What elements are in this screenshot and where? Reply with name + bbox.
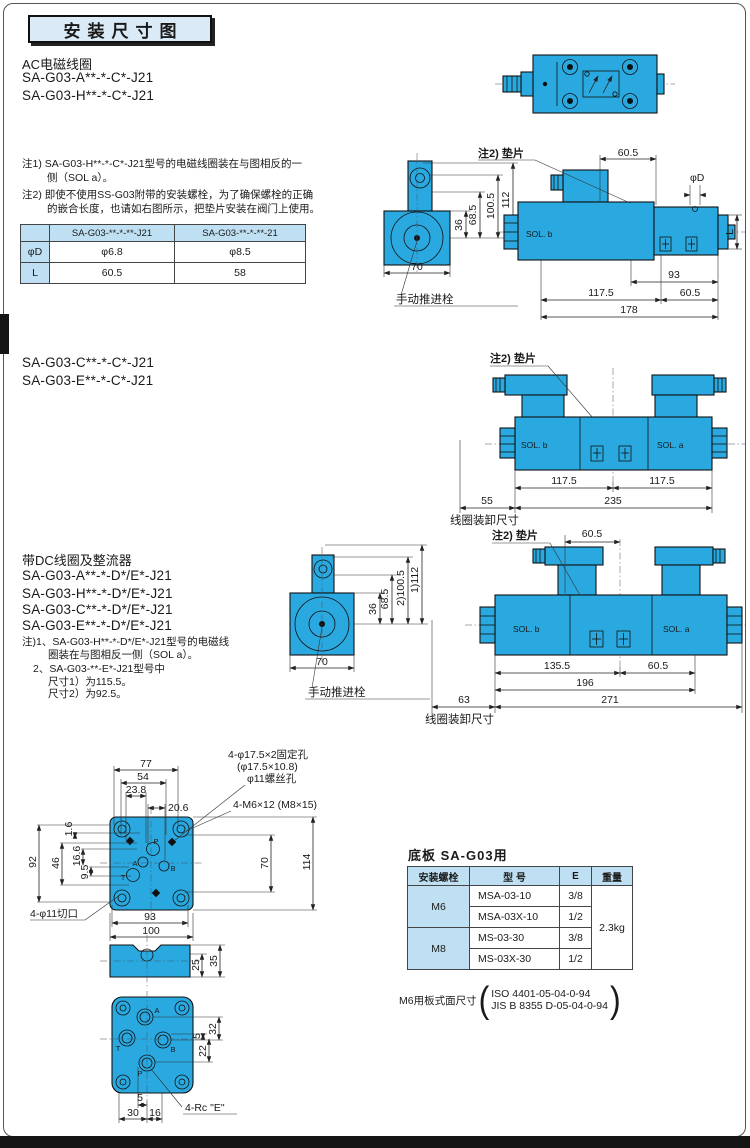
plate-model-msa0310: MSA-03-10 (470, 886, 560, 907)
manual-pin-label: 手动推进栓 (396, 292, 454, 306)
bolt-spec-table: SA-G03-**-*-**-J21 SA-G03-**-*-**-21 φD … (20, 224, 306, 284)
dim-93: 93 (668, 269, 680, 281)
page-edge-tab (0, 314, 9, 354)
dim-23-8-54: 54 (137, 771, 149, 783)
plate-header-model: 型 号 (470, 867, 560, 886)
dim-16: 16 (149, 1107, 161, 1119)
plate-weight-cell: 2.3kg (592, 886, 633, 970)
notch-label: 4-φ11切口 (30, 908, 78, 920)
dim-178: 178 (620, 304, 638, 316)
dim-1-6: 1.6 (63, 822, 75, 837)
ac-end-view-geometry (384, 153, 450, 273)
port-p-label: P (153, 837, 158, 846)
open-paren: ( (479, 984, 490, 1017)
plate-header-weight: 重量 (592, 867, 633, 886)
mounting-face-geometry: P A B T (100, 807, 203, 920)
port-b-label: B (170, 864, 175, 873)
plate-model-ms0330: MS-03-30 (470, 928, 560, 949)
spec-header-j21: SA-G03-**-*-**-J21 (50, 225, 175, 242)
sol-b-label: SOL. b (521, 440, 548, 450)
dim-63: 63 (458, 694, 470, 706)
dim-23-8: 23.8 (126, 784, 147, 796)
dim-117-5: 117.5 (588, 287, 614, 299)
dim-112: 112 (500, 191, 512, 208)
dc-model-2: SA-G03-H**-*-D*/E*-J21 (22, 586, 173, 601)
ac-note1-line2: 侧（SOL a）。 (47, 172, 113, 185)
bolt-spec-label: 4-M6×12 (M8×15) (233, 799, 317, 811)
plate-m6-cell: M6 (408, 886, 470, 928)
dim-196: 196 (576, 677, 594, 689)
coil-removal-label: 线圈装卸尺寸 (425, 712, 494, 726)
drawing-ac-double-solenoid: SOL. b SOL. a 注2) 垫片 117.5 117.5 55 235 … (300, 350, 750, 530)
page-bottom-bar (0, 1136, 750, 1148)
plate-header-e: E (560, 867, 592, 886)
spec-l-21: 58 (175, 263, 306, 284)
drawing-subplate-side: 25 35 (85, 925, 350, 1000)
spec-row-phid-label: φD (21, 242, 50, 263)
plate-header-bolt: 安装螺栓 (408, 867, 470, 886)
subplate-table: 安装螺栓 型 号 E 重量 M6 MSA-03-10 3/8 2.3kg MSA… (407, 866, 633, 970)
port-a-label: A (132, 859, 137, 868)
shim-note-label: 注2) 垫片 (478, 146, 524, 160)
spec-header-21: SA-G03-**-*-**-21 (175, 225, 306, 242)
dim-16-6: 16.6 (71, 846, 83, 867)
sol-b-label: SOL. b (513, 624, 540, 634)
dc-note2-line1: 2、SA-G03-**-E*-J21型号中 (33, 663, 165, 676)
plate-footnote: M6用板式面尺寸 ( ISO 4401-05-04-0-94 JIS B 835… (399, 986, 623, 1015)
port-t-label: T (116, 1044, 121, 1053)
dim-l: L (724, 229, 736, 235)
dim-5-bottom: 5 (137, 1092, 143, 1104)
ac-double-geometry: SOL. b SOL. a (485, 368, 745, 482)
plate-model-msa03x10: MSA-03X-10 (470, 907, 560, 928)
port-t-label: T (121, 873, 126, 882)
plate-e-msa03x10: 1/2 (560, 907, 592, 928)
dc-end-view-geometry (290, 547, 354, 663)
dim-93: 93 (144, 911, 156, 923)
fixing-hole-label-1: 4-φ17.5×2固定孔 (228, 748, 309, 761)
drawing-dc-double-solenoid: 36 68.5 2)100.5 1)112 70 手动推进栓 (270, 525, 750, 740)
dim-68-5: 68.5 (467, 205, 479, 226)
dim-100-5: 100.5 (485, 193, 497, 219)
screw-hole-label: φ11螺丝孔 (247, 772, 297, 785)
dim-271: 271 (601, 694, 619, 706)
spec-corner-cell (21, 225, 50, 242)
dim-114: 114 (301, 853, 313, 870)
dim-70: 70 (316, 656, 328, 668)
dim-phi-d: φD (690, 172, 705, 184)
port-b-label: B (170, 1045, 175, 1054)
drawing-ac-single-solenoid: 36 68.5 100.5 112 70 手动推进栓 SOL. b (368, 145, 750, 337)
ac-model-1: SA-G03-A**-*-C*-J21 (22, 70, 153, 85)
dim-36: 36 (453, 219, 465, 231)
spec-phid-j21: φ6.8 (50, 242, 175, 263)
shim-note-label: 注2) 垫片 (492, 528, 538, 542)
plate-e-ms03x30: 1/2 (560, 949, 592, 970)
dim-77: 77 (140, 758, 152, 770)
dim-70: 70 (411, 261, 423, 273)
dim-60-5: 60.5 (680, 287, 701, 299)
rc-thread-label: 4-Rc "E" (185, 1102, 225, 1114)
spec-row-l-label: L (21, 263, 50, 284)
dim-30: 30 (127, 1107, 139, 1119)
dc-model-4: SA-G03-E**-*-D*/E*-J21 (22, 618, 172, 633)
shim-note-label: 注2) 垫片 (490, 351, 536, 365)
dim-46: 46 (50, 857, 62, 869)
dc-note2-line3: 尺寸2）为92.5。 (48, 688, 127, 701)
ac-note1-line1: 注1) SA-G03-H**-*-C*-J21型号的电磁线圈装在与图相反的一 (22, 158, 302, 171)
jis-standard: JIS B 8355 D-05-04-0-94 (491, 1000, 608, 1013)
dim-top-60-5: 60.5 (618, 147, 639, 159)
dim-135-5: 135.5 (544, 660, 570, 672)
sol-a-label: SOL. a (663, 624, 690, 634)
dim-5-right: 5 (191, 1033, 203, 1039)
close-paren: ) (610, 984, 621, 1017)
manual-pin-label: 手动推进栓 (308, 685, 366, 699)
ac-side-view-geometry: SOL. b (498, 170, 746, 260)
drawing-subplate-bottom: A T B P 5 32 22 5 30 16 (85, 995, 365, 1145)
drawing-mounting-face: P A B T 77 54 23.8 20.6 92 (25, 745, 370, 945)
ac-model-2: SA-G03-H**-*-C*-J21 (22, 88, 154, 103)
dc-note1-line1: 注)1、SA-G03-H**-*-D*/E*-J21型号的电磁线 (22, 636, 229, 649)
dim-60-5: 60.5 (648, 660, 669, 672)
subplate-side-dims: 25 35 (190, 945, 225, 977)
mid-model-2: SA-G03-E**-*-C*-J21 (22, 373, 153, 388)
subplate-table-title: 底板 SA-G03用 (408, 845, 508, 864)
dim-92: 92 (27, 856, 39, 868)
dim-36: 36 (367, 603, 379, 615)
plate-footnote-label: M6用板式面尺寸 (399, 993, 477, 1008)
dim-117-5-left: 117.5 (551, 475, 577, 487)
dim-22: 22 (197, 1045, 209, 1057)
subplate-side-geometry (100, 935, 200, 987)
dim-9-5: 9.5 (79, 865, 91, 880)
dim-117-5-right: 117.5 (649, 475, 675, 487)
plate-e-msa0310: 3/8 (560, 886, 592, 907)
spec-phid-21: φ8.5 (175, 242, 306, 263)
ac-note2-line1: 注2) 即使不使用SS-G03附带的安装螺栓，为了确保螺栓的正确 (22, 189, 313, 202)
port-a-label: A (154, 1006, 159, 1015)
sol-b-label: SOL. b (526, 229, 553, 239)
subplate-bottom-geometry: A T B P (100, 991, 205, 1101)
dim-32: 32 (207, 1023, 219, 1035)
dc-model-1: SA-G03-A**-*-D*/E*-J21 (22, 568, 172, 583)
dc-note1-line2: 圈装在与图相反一侧（SOL a）。 (48, 649, 198, 662)
plan-geometry (495, 55, 675, 113)
sol-a-label: SOL. a (657, 440, 684, 450)
fixing-hole-label-2: (φ17.5×10.8) (237, 761, 298, 773)
dc-double-geometry: SOL. b SOL. a (465, 539, 748, 667)
dim-2-100-5: 2)100.5 (395, 570, 407, 606)
dim-235: 235 (604, 495, 622, 507)
dim-70: 70 (259, 857, 271, 869)
page-title: 安装尺寸图 (28, 15, 212, 43)
catalog-page: 安装尺寸图 AC电磁线圈 SA-G03-A**-*-C*-J21 SA-G03-… (0, 0, 750, 1148)
plate-e-ms0330: 3/8 (560, 928, 592, 949)
dc-model-3: SA-G03-C**-*-D*/E*-J21 (22, 602, 173, 617)
dim-25: 25 (190, 959, 202, 971)
dim-55: 55 (481, 495, 493, 507)
spec-l-j21: 60.5 (50, 263, 175, 284)
mid-model-1: SA-G03-C**-*-C*-J21 (22, 355, 154, 370)
ac-note2-line2: 的嵌合长度，也请如右图所示，把垫片安装在阀门上使用。 (47, 203, 320, 216)
plate-m8-cell: M8 (408, 928, 470, 970)
dim-35: 35 (208, 955, 220, 967)
iso-standard: ISO 4401-05-04-0-94 (491, 988, 608, 1001)
plate-model-ms03x30: MS-03X-30 (470, 949, 560, 970)
dim-68-5: 68.5 (379, 589, 391, 610)
dim-1-112: 1)112 (409, 567, 421, 593)
dim-top-60-5: 60.5 (582, 528, 603, 540)
dc-section-heading: 带DC线圈及整流器 (22, 550, 132, 569)
dim-20-6: 20.6 (168, 802, 189, 814)
